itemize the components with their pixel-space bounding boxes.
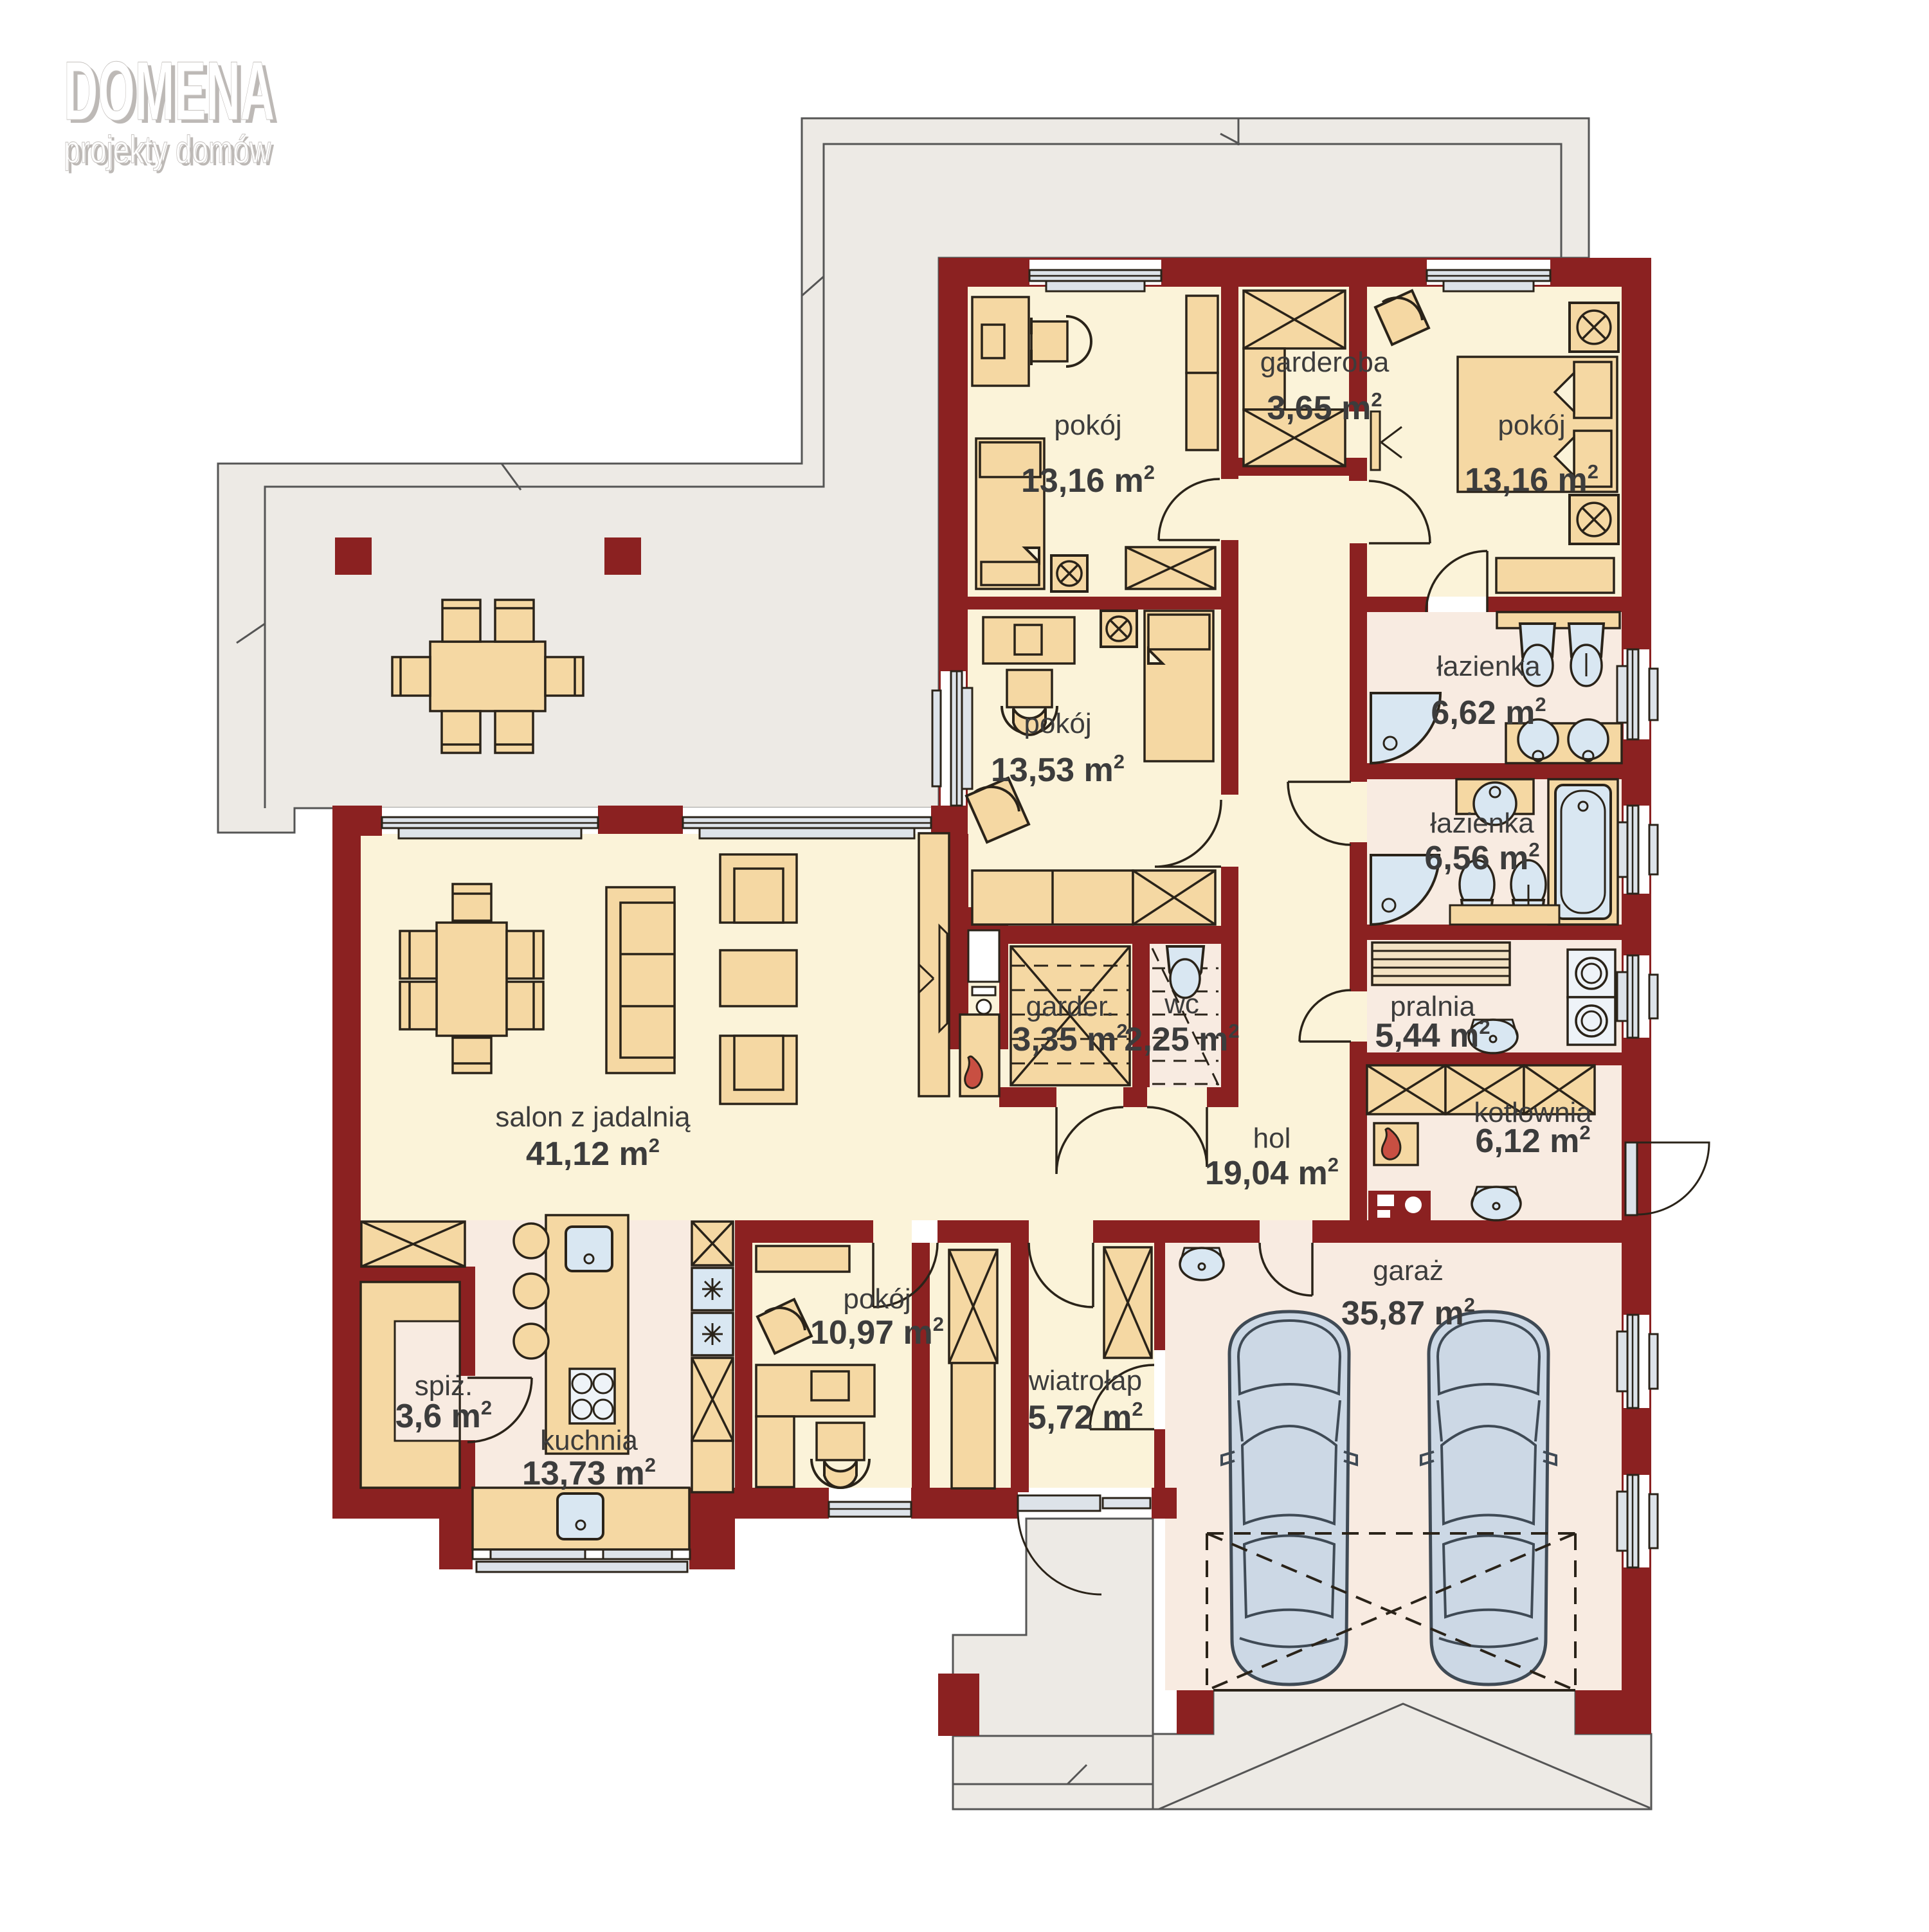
svg-text:6,62 m2: 6,62 m2 [1431, 693, 1546, 732]
svg-text:kuchnia: kuchnia [540, 1425, 638, 1456]
svg-text:DOMENA: DOMENA [64, 44, 275, 138]
svg-text:łazienka: łazienka [1430, 808, 1534, 839]
svg-text:pokój: pokój [1024, 708, 1091, 739]
svg-text:pokój: pokój [1498, 410, 1565, 441]
svg-text:spiż.: spiż. [415, 1370, 473, 1402]
svg-text:3,65 m2: 3,65 m2 [1267, 388, 1382, 427]
svg-text:garaż: garaż [1373, 1255, 1444, 1286]
svg-text:6,56 m2: 6,56 m2 [1424, 838, 1539, 877]
svg-text:35,87 m2: 35,87 m2 [1341, 1294, 1475, 1332]
svg-text:13,16 m2: 13,16 m2 [1021, 461, 1155, 500]
svg-text:10,97 m2: 10,97 m2 [810, 1313, 944, 1351]
svg-text:garderoba: garderoba [1260, 347, 1390, 378]
svg-text:pokój: pokój [843, 1283, 910, 1315]
svg-text:41,12 m2: 41,12 m2 [526, 1134, 660, 1173]
svg-text:13,73 m2: 13,73 m2 [522, 1454, 656, 1492]
svg-text:łazienka: łazienka [1436, 651, 1541, 682]
svg-text:13,16 m2: 13,16 m2 [1465, 460, 1598, 499]
svg-text:19,04 m2: 19,04 m2 [1205, 1153, 1339, 1192]
svg-text:3,35 m2: 3,35 m2 [1012, 1020, 1127, 1058]
svg-text:13,53 m2: 13,53 m2 [991, 750, 1125, 789]
svg-text:hol: hol [1253, 1123, 1291, 1154]
svg-text:projekty domów: projekty domów [64, 128, 271, 171]
svg-text:2,25 m2: 2,25 m2 [1124, 1020, 1239, 1058]
svg-text:3,6 m2: 3,6 m2 [395, 1396, 492, 1435]
svg-text:6,12 m2: 6,12 m2 [1475, 1121, 1590, 1160]
svg-text:5,72 m2: 5,72 m2 [1028, 1398, 1143, 1436]
svg-text:wiatrołap: wiatrołap [1028, 1365, 1142, 1396]
svg-text:salon z jadalnią: salon z jadalnią [495, 1101, 691, 1133]
svg-text:wc: wc [1164, 988, 1199, 1020]
svg-text:garder.: garder. [1026, 991, 1114, 1022]
svg-text:pokój: pokój [1054, 410, 1121, 441]
svg-text:5,44 m2: 5,44 m2 [1375, 1016, 1490, 1054]
